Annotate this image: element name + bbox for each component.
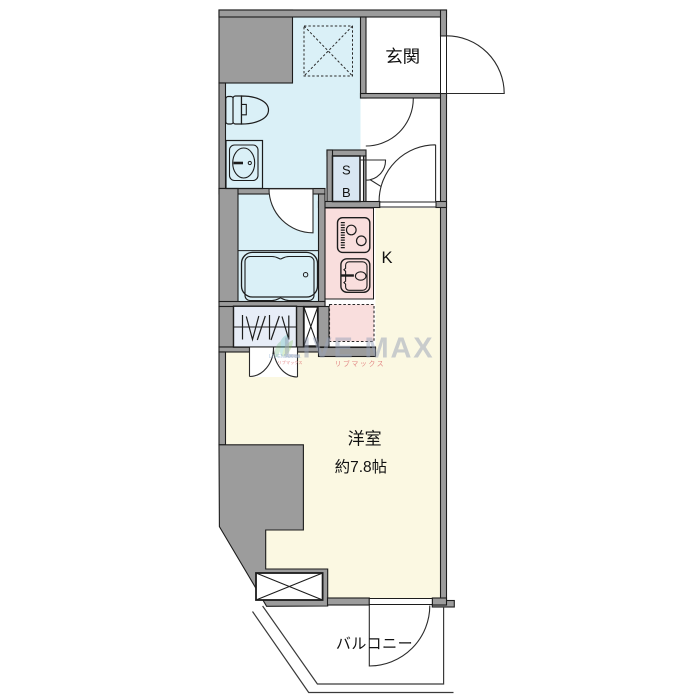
svg-text:玄関: 玄関: [385, 46, 420, 66]
svg-text:S: S: [342, 163, 351, 178]
svg-text:K: K: [382, 249, 393, 267]
svg-text:B: B: [342, 185, 351, 200]
svg-text:リブマックス: リブマックス: [278, 359, 303, 366]
svg-text:約7.8帖: 約7.8帖: [335, 458, 388, 476]
svg-text:LIVE MAX: LIVE MAX: [283, 333, 434, 365]
svg-text:リブマックス: リブマックス: [335, 359, 386, 368]
svg-text:バルコニー: バルコニー: [336, 636, 413, 653]
svg-text:洋室: 洋室: [348, 430, 382, 449]
